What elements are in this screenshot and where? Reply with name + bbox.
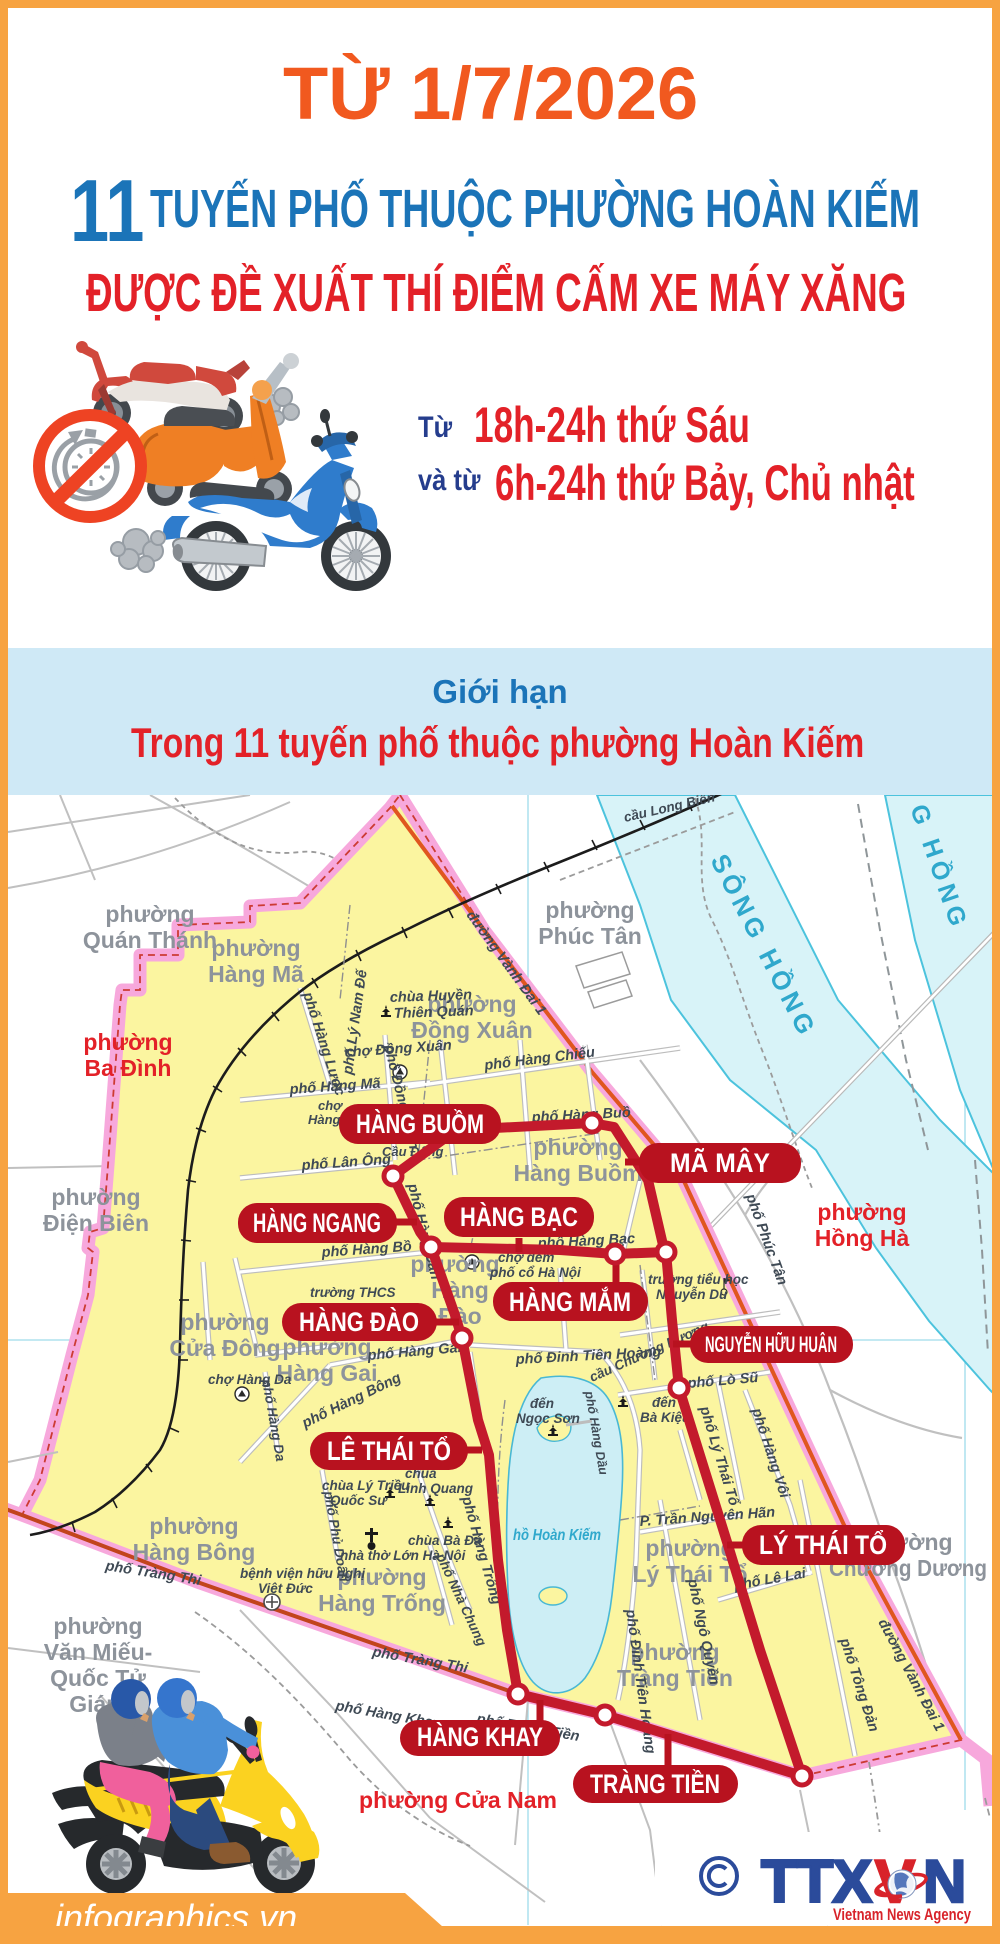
svg-text:NGUYỄN HỮU HUÂN: NGUYỄN HỮU HUÂN <box>705 1331 837 1357</box>
svg-text:hồ Hoàn Kiếm: hồ Hoàn Kiếm <box>513 1527 601 1544</box>
svg-text:phường: phường <box>545 897 634 923</box>
svg-text:TRÀNG TIỀN: TRÀNG TIỀN <box>590 1768 720 1799</box>
svg-text:Quán Thánh: Quán Thánh <box>83 927 217 953</box>
svg-text:Thiên Quán: Thiên Quán <box>394 1003 474 1022</box>
svg-text:chùa Bà Đá: chùa Bà Đá <box>408 1533 482 1548</box>
svg-text:Hàng Gai: Hàng Gai <box>277 1360 378 1386</box>
svg-text:chợ Hàng Da: chợ Hàng Da <box>208 1372 292 1387</box>
svg-text:HÀNG BẠC: HÀNG BẠC <box>460 1201 578 1232</box>
svg-text:Ngọc Sơn: Ngọc Sơn <box>516 1411 580 1426</box>
svg-text:Vietnam News Agency: Vietnam News Agency <box>833 1905 971 1924</box>
svg-text:phường: phường <box>83 1029 172 1055</box>
svg-text:Cửa Đông: Cửa Đông <box>169 1335 280 1361</box>
svg-text:phường: phường <box>533 1134 622 1160</box>
svg-text:LÝ THÁI TỔ: LÝ THÁI TỔ <box>759 1529 887 1560</box>
svg-text:MÃ MÂY: MÃ MÂY <box>670 1147 770 1178</box>
svg-text:phường: phường <box>149 1513 238 1539</box>
svg-text:Điện Biên: Điện Biên <box>43 1210 149 1236</box>
svg-text:HÀNG ĐÀO: HÀNG ĐÀO <box>299 1306 419 1337</box>
svg-text:phố cổ Hà Nội: phố cổ Hà Nội <box>489 1265 581 1280</box>
svg-text:phường: phường <box>817 1199 906 1225</box>
svg-text:Linh Quang: Linh Quang <box>398 1481 474 1496</box>
svg-text:HÀNG MẮM: HÀNG MẮM <box>509 1286 631 1317</box>
svg-text:HÀNG KHAY: HÀNG KHAY <box>417 1721 543 1752</box>
svg-text:phường: phường <box>51 1184 140 1210</box>
svg-text:Hàng Buồm: Hàng Buồm <box>513 1160 642 1186</box>
svg-text:HÀNG BUỒM: HÀNG BUỒM <box>356 1108 484 1139</box>
svg-text:HÀNG NGANG: HÀNG NGANG <box>253 1207 381 1238</box>
svg-text:Hàng Mã: Hàng Mã <box>208 961 304 987</box>
svg-text:phường: phường <box>105 901 194 927</box>
svg-text:bệnh viện hữu nghị: bệnh viện hữu nghị <box>240 1566 365 1581</box>
svg-text:trường THCS: trường THCS <box>310 1285 395 1300</box>
svg-text:Ba Đình: Ba Đình <box>85 1055 172 1081</box>
svg-text:phường: phường <box>211 935 300 961</box>
svg-text:Hàng Bông: Hàng Bông <box>133 1539 256 1565</box>
svg-text:chợ: chợ <box>318 1098 343 1113</box>
svg-text:Hồng Hà: Hồng Hà <box>815 1225 910 1251</box>
svg-text:đến: đến <box>530 1396 554 1411</box>
svg-text:phường: phường <box>180 1309 269 1335</box>
svg-text:LÊ THÁI TỔ: LÊ THÁI TỔ <box>327 1435 451 1466</box>
svg-text:Phúc Tân: Phúc Tân <box>538 923 642 949</box>
